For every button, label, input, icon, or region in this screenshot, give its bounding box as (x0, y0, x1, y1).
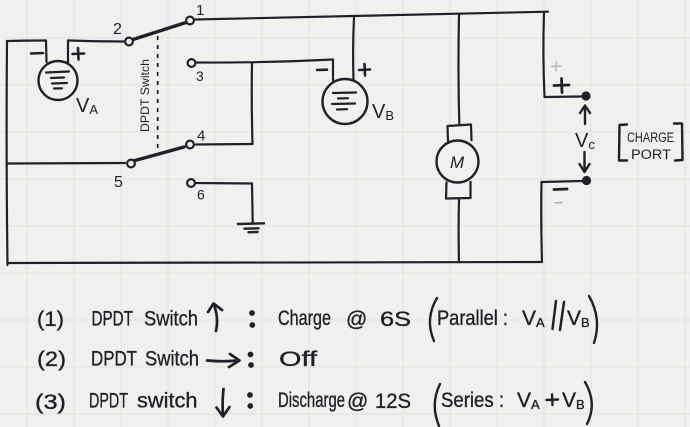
svg-text:Switch: Switch (145, 348, 199, 371)
svg-text:Charge: Charge (278, 307, 331, 330)
svg-text:switch: switch (137, 390, 198, 413)
svg-text:2: 2 (113, 21, 122, 38)
svg-text:(3): (3) (35, 391, 66, 414)
svg-text:Off: Off (279, 348, 317, 371)
svg-text:@: @ (346, 308, 367, 331)
svg-text:4: 4 (197, 128, 205, 145)
svg-text:@: @ (347, 390, 368, 413)
svg-text:12S: 12S (375, 390, 411, 413)
svg-text:5: 5 (114, 174, 123, 191)
svg-text:Parallel :: Parallel : (437, 307, 508, 330)
svg-text:6: 6 (197, 187, 205, 203)
svg-text:DPDT: DPDT (89, 390, 128, 413)
svg-text:3: 3 (196, 68, 204, 84)
svg-text:(1): (1) (37, 308, 64, 331)
svg-text:DPDT: DPDT (92, 308, 134, 331)
svg-text:DPDT: DPDT (91, 348, 137, 371)
svg-text:6S: 6S (380, 308, 411, 331)
svg-text:CHARGE: CHARGE (627, 130, 674, 145)
svg-text:DPDT Switch: DPDT Switch (138, 59, 152, 132)
svg-text:Series :: Series : (441, 389, 504, 412)
svg-text:PORT: PORT (631, 147, 671, 162)
svg-text:M: M (450, 153, 465, 172)
svg-text:(2): (2) (37, 348, 66, 371)
svg-text:Discharge: Discharge (278, 389, 345, 412)
svg-text:Switch: Switch (144, 308, 198, 331)
svg-text:1: 1 (196, 2, 204, 19)
